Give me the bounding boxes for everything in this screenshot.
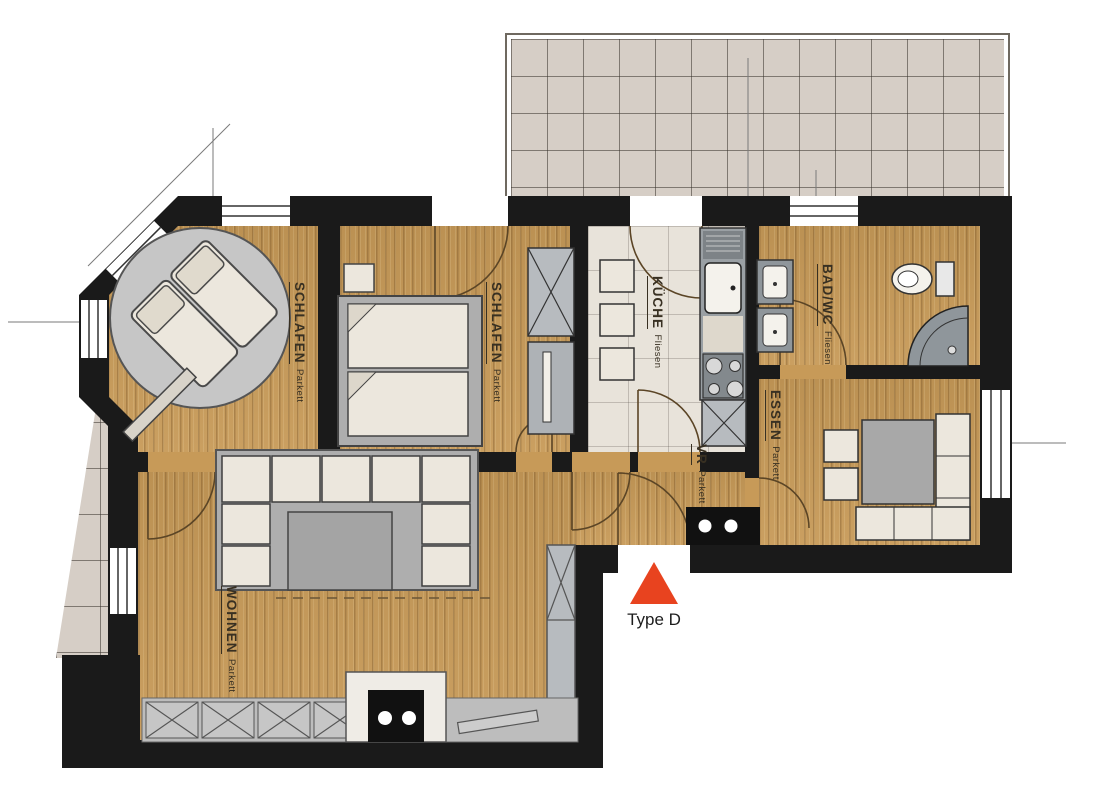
room-name: BAD/WC — [817, 264, 835, 326]
room-name: SCHLAFEN — [289, 282, 307, 364]
room-floor-bad-wc — [759, 226, 980, 365]
room-floor-wohnen — [138, 472, 575, 740]
room-floor-type: Fliesen — [652, 334, 663, 368]
room-floor-type: Parkett — [294, 369, 305, 403]
room-label-schlafen-2: SCHLAFEN Parkett — [487, 282, 504, 403]
room-floor-schlafen-1 — [108, 226, 318, 452]
room-label-bad-wc: BAD/WC Fliesen — [818, 264, 835, 365]
marker-triangle-icon — [630, 562, 678, 604]
room-label-kueche: KÜCHE Fliesen — [648, 276, 665, 369]
room-floor-type: Parkett — [770, 446, 781, 480]
room-floor-schlafen-2 — [340, 226, 570, 452]
type-label: Type D — [600, 610, 708, 630]
terrace-top — [505, 33, 1010, 226]
room-name: WOHNEN — [221, 586, 239, 654]
terrace-top-tiles — [511, 39, 1004, 220]
room-floor-kueche — [588, 226, 745, 452]
room-label-essen: ESSEN Parkett — [766, 390, 783, 480]
room-label-vr: VR Parkett — [692, 444, 709, 504]
room-label-schlafen-1: SCHLAFEN Parkett — [290, 282, 307, 403]
room-floor-essen — [759, 379, 980, 545]
room-name: ESSEN — [765, 390, 783, 441]
room-name: KÜCHE — [647, 276, 665, 329]
room-name: VR — [691, 444, 709, 465]
room-name: SCHLAFEN — [486, 282, 504, 364]
room-floor-type: Parkett — [491, 369, 502, 403]
floor-plan: SCHLAFEN Parkett SCHLAFEN Parkett KÜCHE … — [0, 0, 1100, 794]
room-floor-vr — [575, 472, 759, 545]
room-floor-type: Fliesen — [822, 331, 833, 365]
room-label-wohnen: WOHNEN Parkett — [222, 586, 239, 693]
room-floor-type: Parkett — [226, 659, 237, 693]
room-floor-type: Parkett — [696, 470, 707, 504]
